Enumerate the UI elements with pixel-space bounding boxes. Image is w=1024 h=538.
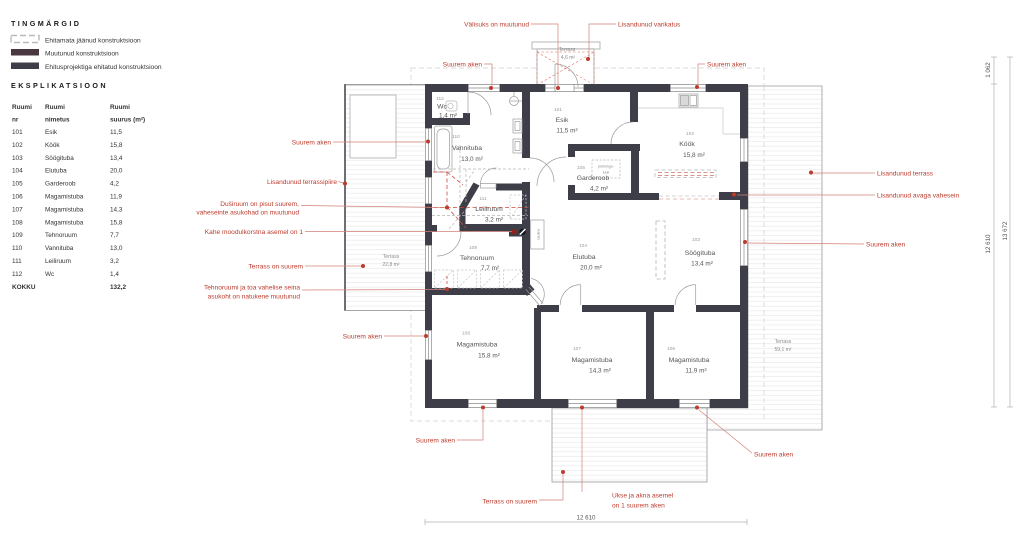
svg-text:59,1 m²: 59,1 m²: [775, 347, 792, 353]
svg-text:Garderoob: Garderoob: [45, 181, 76, 188]
svg-text:Köök: Köök: [45, 142, 60, 149]
svg-text:20,0: 20,0: [110, 168, 123, 175]
svg-text:3,2 m²: 3,2 m²: [485, 217, 503, 224]
svg-text:Ruumi: Ruumi: [110, 104, 130, 111]
svg-text:13,0: 13,0: [110, 245, 123, 252]
svg-text:12 610: 12 610: [577, 515, 596, 522]
svg-text:Elutuba: Elutuba: [572, 254, 595, 261]
svg-text:suurus (m²): suurus (m²): [110, 117, 145, 124]
svg-text:Magamistuba: Magamistuba: [572, 357, 613, 364]
svg-text:15,8: 15,8: [110, 142, 123, 149]
svg-text:on 1 suurem aken: on 1 suurem aken: [612, 503, 665, 510]
svg-text:103: 103: [12, 155, 23, 162]
svg-text:Magamistuba: Magamistuba: [45, 206, 84, 213]
svg-text:108: 108: [12, 219, 23, 226]
svg-text:Söögituba: Söögituba: [685, 250, 716, 257]
svg-text:15,8 m²: 15,8 m²: [478, 353, 500, 360]
svg-text:Muutunud konstruktsioon: Muutunud konstruktsioon: [45, 51, 119, 58]
svg-text:7,7: 7,7: [110, 232, 119, 239]
svg-text:Duširuum on pisut suurem,: Duširuum on pisut suurem,: [220, 201, 299, 208]
svg-text:104: 104: [579, 243, 587, 249]
svg-text:Esik: Esik: [556, 117, 569, 124]
svg-text:Elutuba: Elutuba: [45, 168, 67, 175]
svg-text:pööningu-: pööningu-: [598, 165, 615, 169]
svg-text:Vannituba: Vannituba: [45, 245, 74, 252]
svg-text:112: 112: [12, 271, 23, 278]
svg-text:112: 112: [436, 96, 444, 102]
svg-text:Ehitusprojektiga ehitatud kons: Ehitusprojektiga ehitatud konstruktsioon: [45, 64, 162, 71]
svg-text:Suurem aken: Suurem aken: [416, 438, 456, 445]
svg-text:11,5 m²: 11,5 m²: [556, 128, 577, 135]
svg-text:nimetus: nimetus: [45, 117, 70, 124]
svg-text:108: 108: [462, 331, 470, 337]
svg-text:Terrass on suurem: Terrass on suurem: [482, 499, 537, 506]
svg-text:22,8 m²: 22,8 m²: [383, 262, 400, 268]
svg-text:Terrass: Terrass: [383, 254, 400, 260]
svg-text:14,3 m²: 14,3 m²: [589, 368, 611, 375]
svg-text:vaheseinte asukohad on muutunu: vaheseinte asukohad on muutunud: [196, 210, 299, 217]
svg-text:110: 110: [12, 245, 23, 252]
svg-text:1,4 m²: 1,4 m²: [439, 112, 457, 119]
svg-text:KOKKU: KOKKU: [12, 284, 36, 291]
svg-text:103: 103: [692, 237, 700, 243]
svg-text:Ehitamata jäänud konstruktsioo: Ehitamata jäänud konstruktsioon: [45, 38, 141, 45]
svg-text:102: 102: [12, 142, 23, 149]
svg-text:Suurem aken: Suurem aken: [343, 334, 383, 341]
svg-text:Magamistuba: Magamistuba: [669, 357, 710, 364]
svg-text:Söögituba: Söögituba: [45, 155, 74, 162]
svg-text:106: 106: [667, 346, 675, 352]
svg-text:Tehnoruum: Tehnoruum: [460, 255, 494, 262]
svg-text:12 610: 12 610: [985, 234, 992, 253]
svg-text:Suurem aken: Suurem aken: [443, 62, 483, 69]
svg-text:Suurem aken: Suurem aken: [754, 452, 794, 459]
svg-text:Magamistuba: Magamistuba: [45, 194, 84, 201]
svg-text:Tehnoruum: Tehnoruum: [45, 232, 77, 239]
svg-text:Vannituba: Vannituba: [452, 145, 482, 152]
svg-text:Lisandunud avaga vahesein: Lisandunud avaga vahesein: [877, 193, 959, 200]
svg-text:Magamistuba: Magamistuba: [457, 342, 498, 349]
svg-text:Esik: Esik: [45, 129, 58, 136]
svg-text:11,5: 11,5: [110, 129, 122, 136]
svg-text:106: 106: [12, 194, 23, 201]
svg-text:TINGMÄRGID: TINGMÄRGID: [11, 19, 81, 28]
svg-text:13,0 m²: 13,0 m²: [461, 156, 483, 163]
svg-text:Kahe moodulkorstna asemel on 1: Kahe moodulkorstna asemel on 1: [205, 229, 304, 236]
svg-text:Leiliruum: Leiliruum: [45, 258, 71, 265]
svg-text:Wc: Wc: [437, 104, 447, 111]
svg-text:101: 101: [554, 107, 562, 113]
svg-text:Tehnoruumi ja toa vahelise sei: Tehnoruumi ja toa vahelise seina: [204, 285, 300, 292]
svg-text:4,2 m²: 4,2 m²: [590, 186, 608, 193]
svg-text:Suurem aken: Suurem aken: [707, 62, 747, 69]
svg-text:107: 107: [12, 206, 23, 213]
svg-text:105: 105: [12, 181, 23, 188]
svg-text:13,4: 13,4: [110, 155, 123, 162]
svg-text:102: 102: [686, 131, 694, 137]
svg-text:107: 107: [573, 346, 581, 352]
svg-text:132,2: 132,2: [110, 284, 126, 291]
svg-text:Lisandunud terrass: Lisandunud terrass: [877, 171, 934, 178]
svg-text:13 672: 13 672: [1002, 221, 1009, 240]
svg-text:Ruumi: Ruumi: [12, 104, 32, 111]
svg-text:kamin: kamin: [537, 229, 541, 239]
svg-text:Leiliruum: Leiliruum: [475, 206, 503, 213]
svg-text:nr: nr: [12, 117, 19, 124]
svg-text:14,3: 14,3: [110, 206, 123, 213]
svg-text:111: 111: [12, 258, 22, 265]
svg-text:Ruumi: Ruumi: [45, 104, 65, 111]
svg-text:Lisandunud terrassipiire: Lisandunud terrassipiire: [267, 179, 337, 186]
svg-text:luuk: luuk: [603, 171, 610, 175]
svg-text:104: 104: [12, 168, 23, 175]
svg-text:110: 110: [452, 134, 460, 140]
svg-text:Ukse ja akna asemel: Ukse ja akna asemel: [612, 493, 674, 500]
svg-text:3,2: 3,2: [110, 258, 119, 265]
svg-text:Wc: Wc: [45, 271, 55, 278]
svg-text:4,2: 4,2: [110, 181, 119, 188]
svg-text:EKSPLIKATSIOON: EKSPLIKATSIOON: [11, 81, 108, 90]
svg-text:Garderoob: Garderoob: [577, 175, 610, 182]
svg-text:Terrass: Terrass: [775, 339, 792, 345]
svg-text:1,4: 1,4: [110, 271, 119, 278]
svg-text:Lisandunud varikatus: Lisandunud varikatus: [618, 22, 681, 29]
svg-text:11,9 m²: 11,9 m²: [685, 368, 706, 375]
svg-text:1 062: 1 062: [985, 62, 992, 78]
svg-text:13,4 m²: 13,4 m²: [691, 261, 713, 268]
svg-text:Suurem aken: Suurem aken: [292, 140, 332, 147]
svg-text:109: 109: [12, 232, 23, 239]
svg-text:109: 109: [469, 245, 477, 251]
svg-text:Terrass on suurem: Terrass on suurem: [248, 264, 303, 271]
svg-text:105: 105: [577, 165, 585, 171]
svg-text:Suurem aken: Suurem aken: [866, 242, 906, 249]
svg-text:20,0 m²: 20,0 m²: [580, 265, 602, 272]
svg-text:101: 101: [12, 129, 23, 136]
svg-text:Köök: Köök: [679, 141, 695, 148]
svg-text:15,8 m²: 15,8 m²: [683, 152, 705, 159]
svg-text:15,8: 15,8: [110, 219, 123, 226]
svg-text:Magamistuba: Magamistuba: [45, 219, 84, 226]
svg-text:11,9: 11,9: [110, 194, 122, 201]
svg-text:Välisuks on muutunud: Välisuks on muutunud: [464, 22, 529, 29]
svg-text:4,6 m²: 4,6 m²: [561, 55, 576, 61]
svg-text:111: 111: [479, 196, 487, 202]
svg-text:asukoht on natukene muutunud: asukoht on natukene muutunud: [208, 294, 301, 301]
svg-text:7,7 m²: 7,7 m²: [481, 265, 499, 272]
